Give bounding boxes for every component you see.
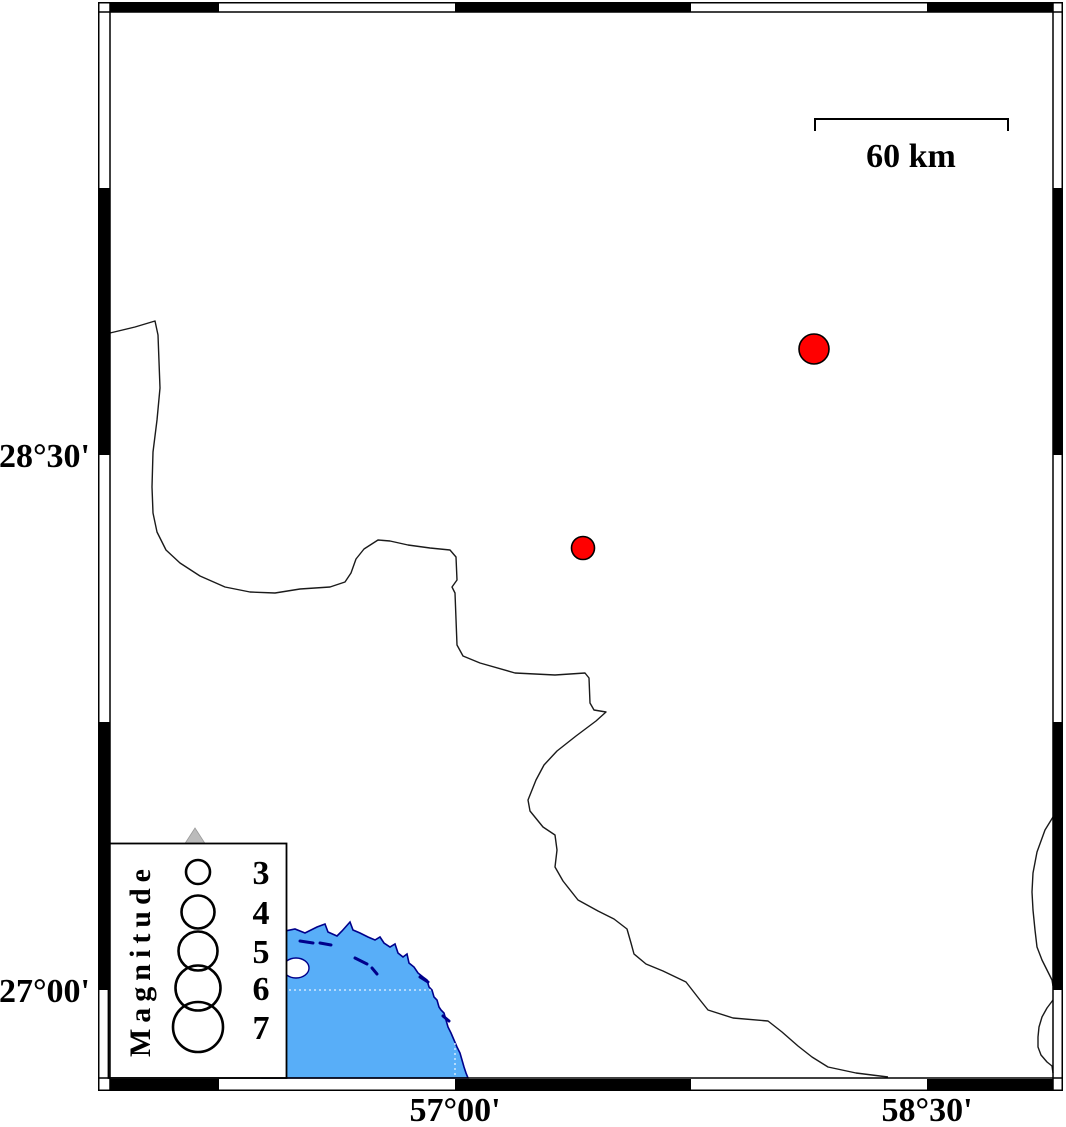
legend-value-mag3: 3	[253, 855, 270, 892]
scale-bar: 60 km	[815, 119, 1008, 175]
frame-segment	[1054, 722, 1063, 990]
bottom-axis-label-5700: 57°00'	[409, 1092, 500, 1127]
scale-bar-label: 60 km	[866, 138, 956, 175]
seismicity-map-page: Magnitude 3 4 5 6 7 60 km	[0, 0, 1066, 1127]
magnitude-legend: Magnitude 3 4 5 6 7	[109, 844, 287, 1079]
coastline-right-lower	[1038, 1000, 1053, 1073]
left-axis-label-2700: 27°00'	[0, 973, 90, 1010]
frame-segment	[455, 1079, 691, 1090]
scale-bar-bracket	[815, 119, 1008, 131]
legend-values: 3 4 5 6 7	[253, 855, 270, 1047]
bottom-axis-label-5830: 58°30'	[881, 1092, 972, 1127]
legend-value-mag7: 7	[253, 1010, 270, 1047]
legend-value-mag6: 6	[253, 971, 270, 1008]
islet-dash	[300, 941, 313, 943]
legend-value-mag4: 4	[253, 895, 270, 932]
frame-segment	[927, 1079, 1053, 1090]
station-triangle-icon	[184, 828, 206, 845]
islet-dash	[320, 943, 331, 945]
legend-value-mag5: 5	[253, 934, 270, 971]
frame-segment	[1054, 188, 1063, 455]
frame-segment	[100, 188, 110, 455]
map-canvas: Magnitude 3 4 5 6 7 60 km	[0, 0, 1066, 1127]
frame-segment	[100, 722, 110, 990]
earthquake-point-2	[572, 537, 595, 560]
earthquake-point-1	[799, 334, 829, 364]
frame-segment	[110, 1079, 219, 1090]
frame-segment	[455, 3, 691, 12]
sea-polygon	[262, 922, 468, 1078]
legend-title: Magnitude	[124, 863, 157, 1057]
frame-segment	[110, 3, 219, 12]
left-axis-label-2830: 28°30'	[0, 438, 90, 475]
coastline-right-upper	[1032, 817, 1053, 986]
frame-segment	[927, 3, 1053, 12]
